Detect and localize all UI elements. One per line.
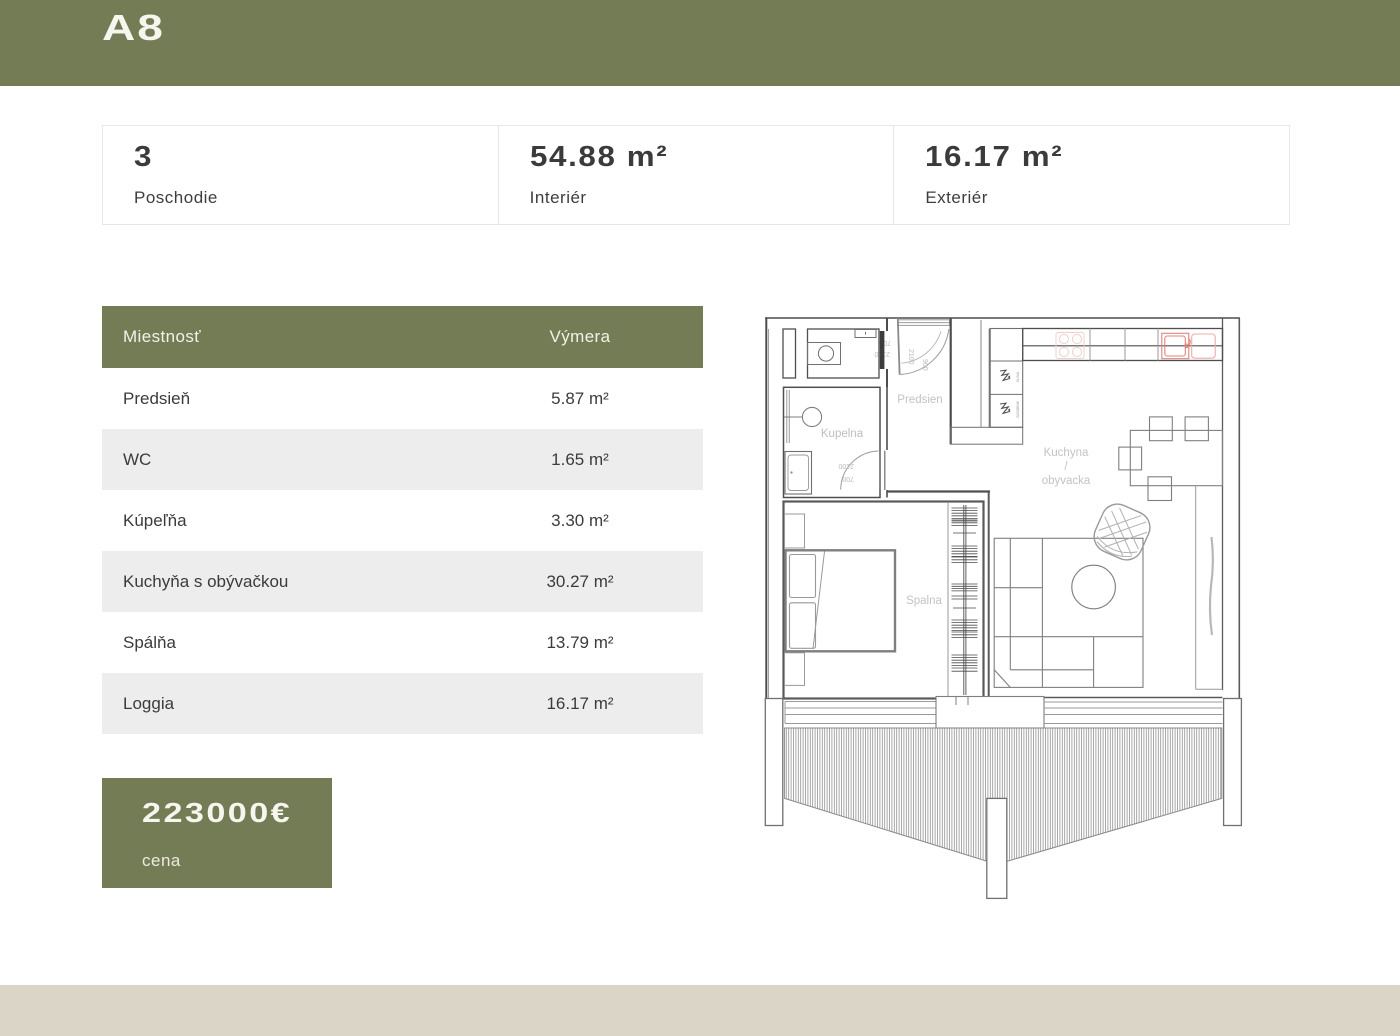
svg-text:2100: 2100 [907, 349, 914, 365]
svg-text:900: 900 [921, 359, 928, 371]
svg-text:ZASOBNIK: ZASOBNIK [1016, 400, 1020, 418]
svg-text:700: 700 [842, 475, 854, 482]
svg-text:2100: 2100 [838, 462, 854, 469]
svg-text:/: / [1064, 461, 1068, 473]
svg-text:obyvacka: obyvacka [1042, 475, 1091, 487]
svg-text:Kupelna: Kupelna [821, 428, 864, 440]
svg-text:Spalna: Spalna [906, 595, 942, 607]
svg-text:Kuchyna: Kuchyna [1044, 447, 1089, 459]
svg-text:KLIMA: KLIMA [1016, 371, 1020, 382]
svg-text:Predsien: Predsien [897, 394, 942, 406]
